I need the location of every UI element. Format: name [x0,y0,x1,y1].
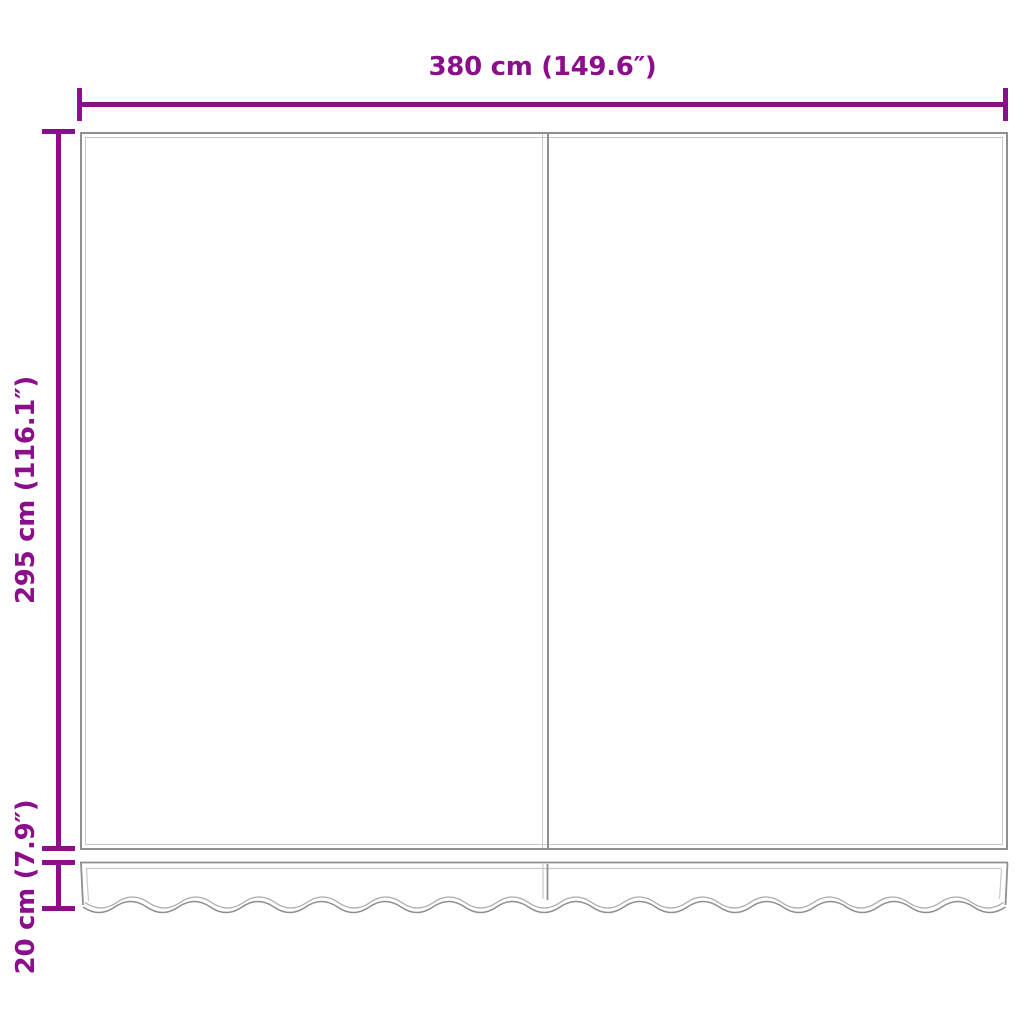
valance-right-edge [1006,863,1008,905]
height-dimension-tick-top [42,129,75,134]
height-dimension-line [56,131,61,849]
valance-right-stitching [1000,869,1002,899]
height-dimension-label: 295 cm (116.1″) [11,376,41,604]
awning-fabric-dimension-diagram: 380 cm (149.6″) 295 cm (116.1″) 20 cm (7… [0,0,1024,1024]
valance-left-edge [81,863,83,905]
width-dimension-tick-right [1003,88,1008,121]
width-dimension-label: 380 cm (149.6″) [79,49,1006,85]
valance-scalloped-edge-inner [85,897,1004,908]
height-dimension-tick-bottom [42,846,75,851]
valance-height-dimension-line [56,862,61,909]
valance-height-dimension-tick-bottom [42,906,75,911]
width-dimension-tick-left [77,88,82,121]
valance-height-dimension-label: 20 cm (7.9″) [11,800,41,975]
fabric-panel-center-seam [542,134,549,848]
width-dimension-line [79,102,1006,107]
valance-strip [78,856,1012,932]
valance-left-stitching [87,869,89,901]
valance-height-dimension-tick-top [42,860,75,865]
